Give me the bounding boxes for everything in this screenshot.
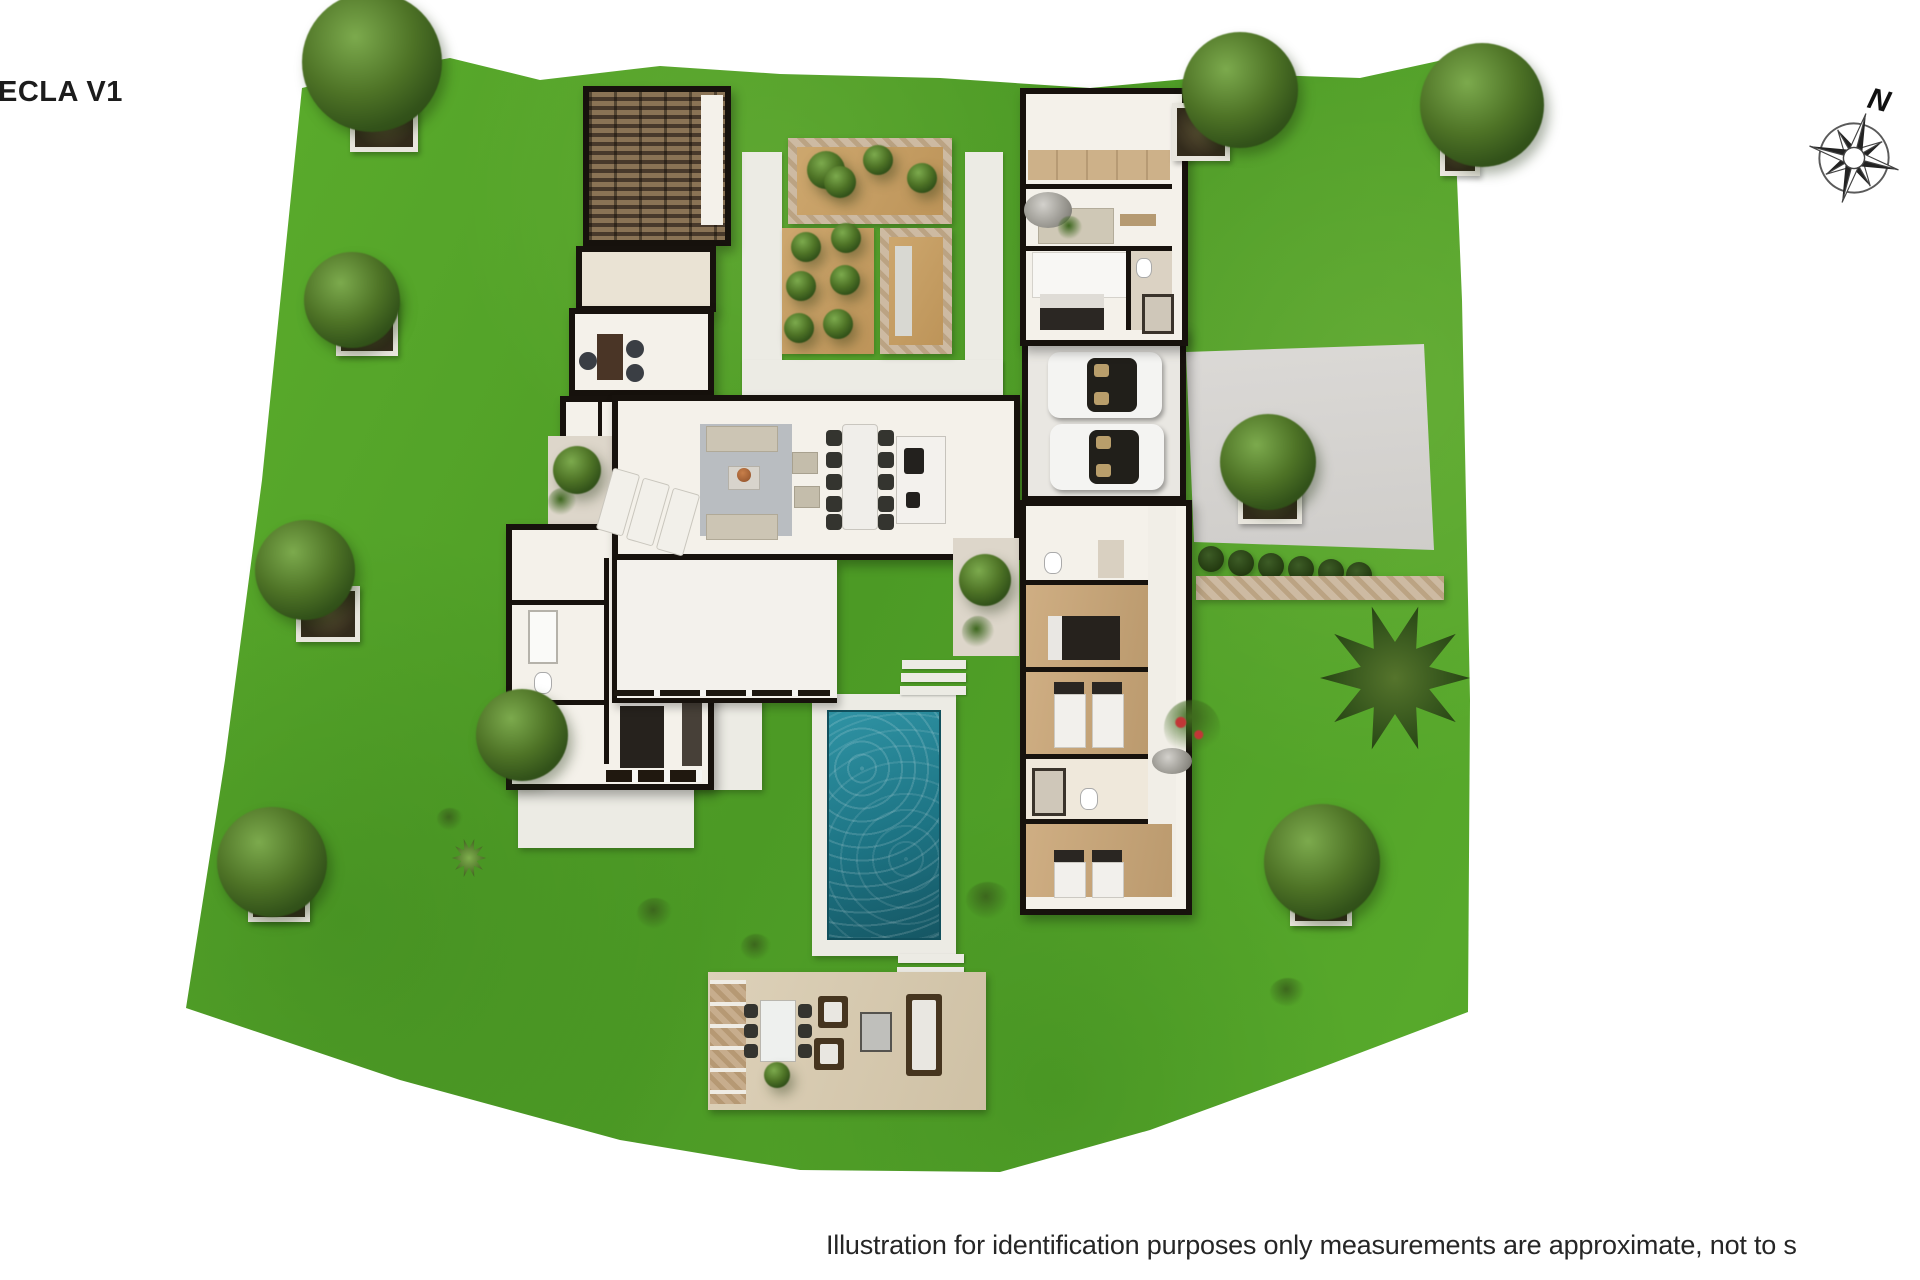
car-seat [1096,464,1111,477]
bedroom-b-floor [1026,672,1148,754]
dining-chair [878,430,894,446]
covered-patio [612,560,837,703]
dining-chair [826,474,842,490]
garden-tree [1182,32,1298,148]
garden-tree [255,520,355,620]
compass: N [1806,100,1916,210]
outdoor-chair [798,1024,812,1038]
olive-tree [823,309,853,339]
car [1048,352,1162,418]
master-bed [620,706,664,768]
olive-tree [830,265,860,295]
stone-path-strip [1196,576,1444,600]
wardrobe-counter [1028,150,1170,180]
wine-cellar-pergola-room [583,86,731,246]
glass-wall [614,690,830,696]
island-hob [904,448,924,474]
sliding-glass-doors [606,770,702,782]
dining-chair [826,514,842,530]
car-seat [1094,392,1109,405]
cellar-aisle [701,95,723,225]
planter-tree-small [824,166,856,198]
toilet [1136,258,1152,278]
outdoor-chair [798,1044,812,1058]
armchair [794,486,820,508]
grass-tuft [637,898,673,928]
outdoor-dining-table [760,1000,796,1062]
garden-tree [217,807,327,917]
single-bed [1092,862,1124,898]
island-sink [906,492,920,508]
double-bed-dark [1040,308,1104,330]
armchair-cushion [820,1044,838,1064]
single-bed-headboard [1092,850,1122,862]
olive-tree [784,313,814,343]
outdoor-coffee-table [860,1012,892,1052]
armchair [792,452,818,474]
single-bed [1092,694,1124,748]
stepping-stone [901,673,966,682]
stepping-stone [898,954,964,963]
office-chair [626,364,644,382]
single-bed-headboard [1054,850,1084,862]
outdoor-chair [744,1024,758,1038]
bathtub [528,610,558,664]
interior-wall [512,600,604,605]
single-bed-headboard [1054,682,1084,694]
grass-tuft [966,882,1010,918]
courtyard-path-right [965,152,1003,395]
olive-tree [791,232,821,262]
bed-pillow [1048,616,1062,660]
vanity [1098,540,1124,578]
interior-wall [1026,184,1172,189]
hedge-bush [1228,550,1254,576]
office-desk [597,334,623,380]
compass-rose-icon [1795,99,1913,217]
dining-table [842,424,878,530]
garden-tree [304,252,400,348]
car-seat [1094,364,1109,377]
garden-tree [1420,43,1544,167]
dining-chair [826,496,842,512]
courtyard-plant [548,488,576,516]
courtyard-path-bottom [742,360,1003,395]
master-terrace-slab [518,786,694,848]
office-chair [579,352,597,370]
garden-tree [1220,414,1316,510]
swimming-pool [827,710,941,940]
single-bed [1054,694,1086,748]
pergola-stone-wall [710,980,746,1104]
floorplan-canvas: ECLA V1 N Illustration for identificatio… [0,0,1920,1280]
stepping-stone [902,660,966,669]
office-chair [626,340,644,358]
car [1050,424,1164,490]
olive-tree [786,271,816,301]
grass-tuft [1058,216,1082,240]
heart-decor [737,468,751,482]
potted-plant [764,1062,790,1088]
grass-tuft [1270,978,1306,1006]
garden-tree [1264,804,1380,920]
planter-bed [889,237,943,345]
dining-chair [878,496,894,512]
outdoor-chair [744,1004,758,1018]
plan-title: ECLA V1 [0,76,123,109]
compass-north-label: N [1864,82,1893,120]
grass-tuft [437,808,463,830]
dining-chair [878,452,894,468]
sofa-north [706,426,778,452]
court-tree [959,554,1011,606]
raised-planter-east [880,228,952,354]
double-bed-dark [1062,616,1120,660]
dining-chair [878,514,894,530]
outdoor-chair [744,1044,758,1058]
dining-chair [826,452,842,468]
white-wardrobe [1032,252,1128,298]
planter-tree-small [907,163,937,193]
shower [1142,294,1174,334]
shower [1032,768,1066,816]
courtyard-bush [553,446,601,494]
bed-pillow [1040,294,1104,308]
car-seat [1096,436,1111,449]
storage-room [576,246,716,312]
outdoor-chair [798,1004,812,1018]
olive-tree [831,223,861,253]
toilet [1080,788,1098,810]
stepping-stone [900,686,966,695]
single-bed [1054,862,1086,898]
toilet [1044,552,1062,574]
outdoor-lounge-terrace [708,972,986,1110]
console-table [1120,214,1156,226]
sofa-cushion [912,1000,936,1070]
grass-tuft [741,934,771,960]
interior-wall [604,558,609,764]
sofa-south [706,514,778,540]
planter-tree-small [863,145,893,175]
hedge-bush [1198,546,1224,572]
landscape-rock [1152,748,1192,774]
dining-chair [826,430,842,446]
court-bush [962,616,994,648]
single-bed-headboard [1092,682,1122,694]
armchair-cushion [824,1002,842,1022]
disclaimer-text: Illustration for identification purposes… [826,1230,1797,1261]
garden-bush [476,689,568,781]
planter-step [895,246,911,337]
courtyard-path-left [742,152,782,395]
dining-chair [878,474,894,490]
